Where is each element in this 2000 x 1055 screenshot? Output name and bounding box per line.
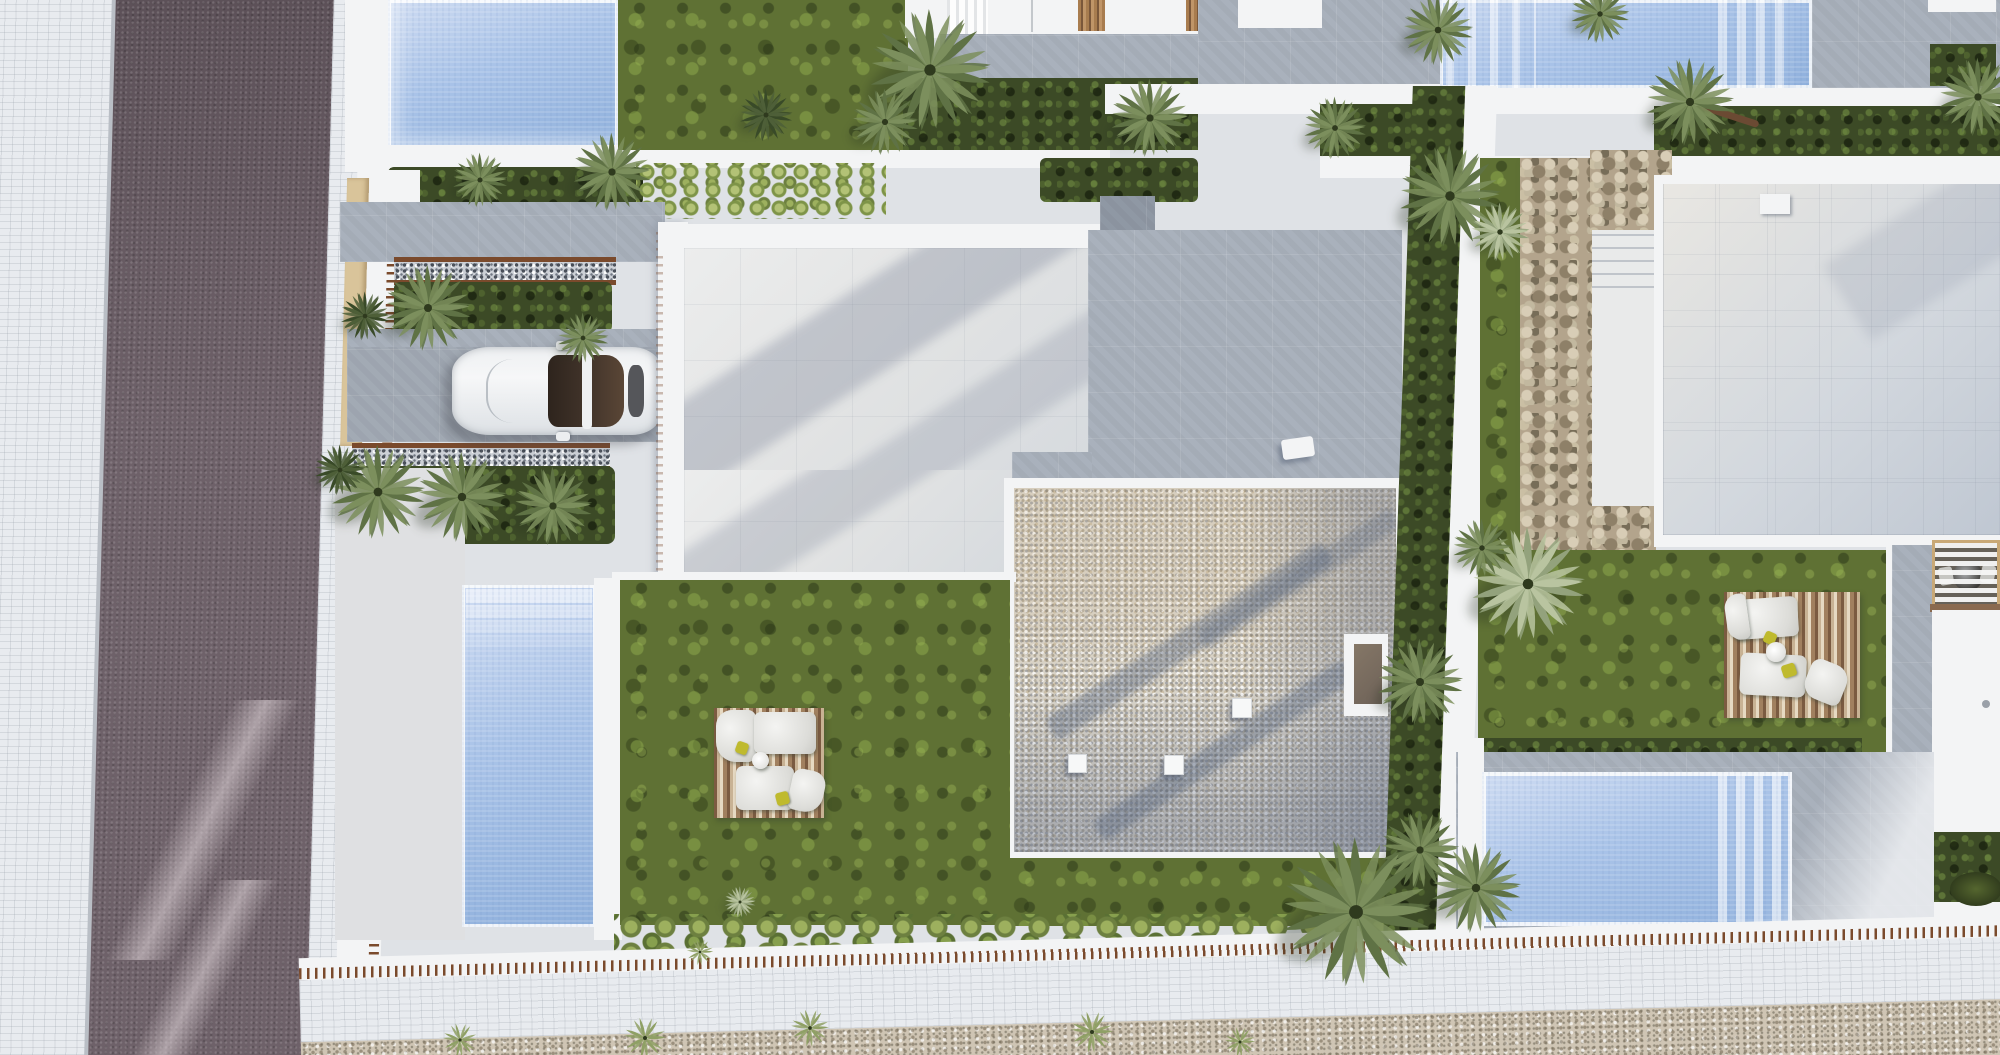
palm-tree — [724, 886, 756, 918]
palm-tree — [1645, 57, 1735, 147]
palm-tree — [1570, 0, 1630, 44]
palm-tree — [1376, 638, 1464, 726]
grass-tuft — [686, 938, 714, 966]
palm-tree — [851, 88, 919, 156]
palm-tree — [1110, 78, 1190, 158]
palm-tree — [340, 291, 390, 341]
palm-tree — [1402, 0, 1474, 66]
palm-tree — [572, 132, 652, 212]
palm-tree — [314, 444, 366, 496]
palm-tree — [1303, 96, 1367, 160]
palm-tree — [1430, 842, 1522, 934]
palm-tree — [416, 451, 508, 543]
aerial-render-scene — [0, 0, 2000, 1055]
palm-tree — [384, 264, 472, 352]
grass-tuft — [1070, 1010, 1114, 1054]
palm-tree — [1280, 836, 1432, 988]
grass-tuft — [623, 1016, 667, 1055]
palm-tree — [513, 466, 593, 546]
palm-tree — [1470, 202, 1530, 262]
palm-tree — [557, 312, 609, 364]
palm-tree — [739, 88, 793, 142]
grass-tuft — [442, 1022, 478, 1055]
palm-tree — [1938, 57, 2000, 137]
palm-tree — [1452, 518, 1512, 578]
palm-tree — [452, 152, 508, 208]
vegetation-layer — [0, 0, 2000, 1055]
grass-tuft — [1224, 1026, 1256, 1055]
grass-tuft — [790, 1008, 830, 1048]
